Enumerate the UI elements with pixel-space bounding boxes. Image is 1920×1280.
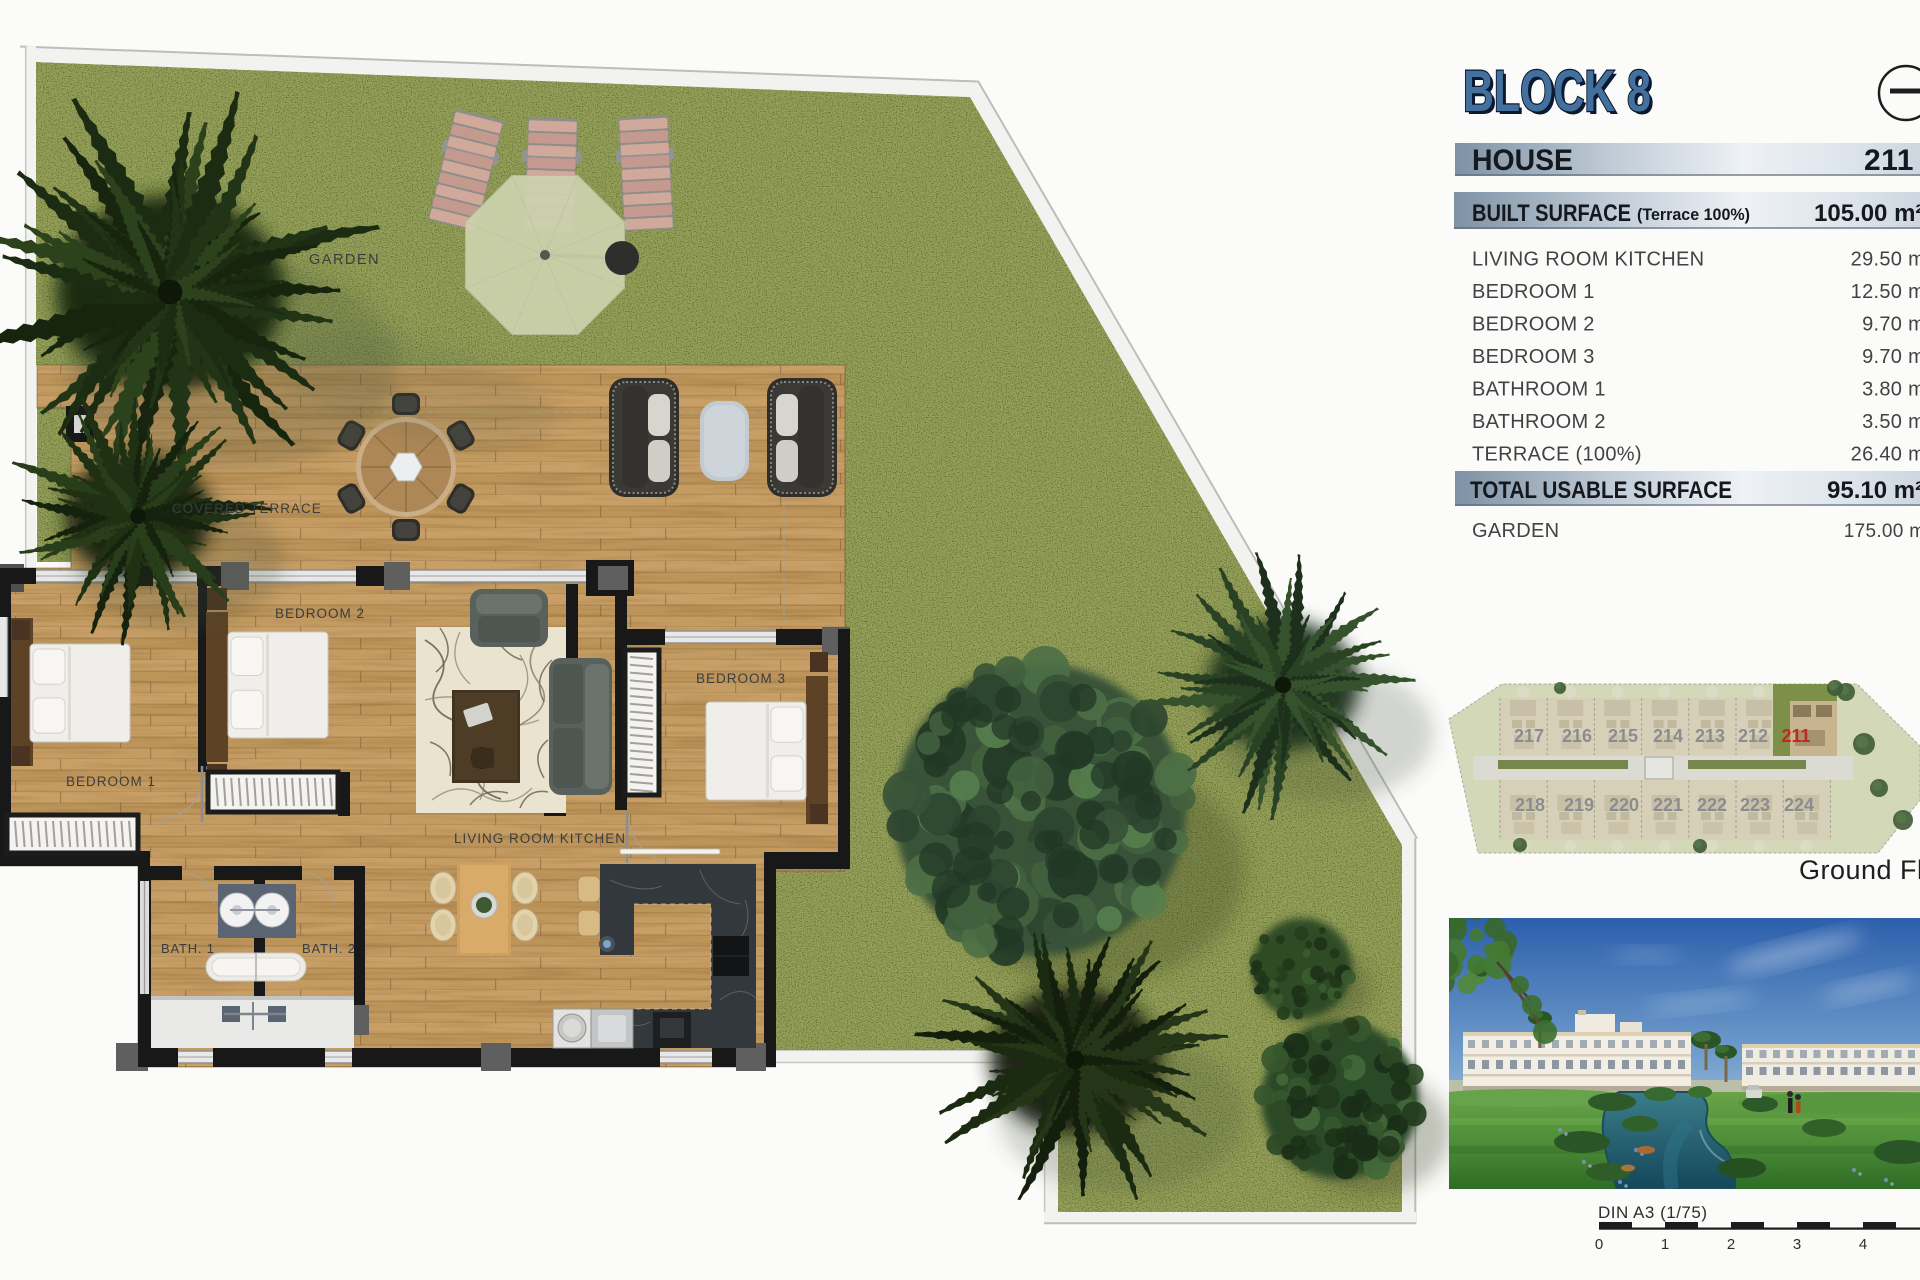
svg-text:1: 1 [1661,1236,1669,1253]
svg-text:218: 218 [1515,795,1545,815]
svg-text:224: 224 [1784,795,1814,815]
svg-text:29.50 m²: 29.50 m² [1851,249,1920,271]
svg-text:3.50 m²: 3.50 m² [1862,411,1920,433]
svg-text:BATH. 1: BATH. 1 [161,941,215,956]
svg-text:2: 2 [1727,1236,1735,1253]
svg-text:BEDROOM 2: BEDROOM 2 [275,606,365,621]
svg-text:213: 213 [1695,726,1725,746]
svg-text:BEDROOM 3: BEDROOM 3 [1472,346,1595,368]
svg-text:3.80 m²: 3.80 m² [1862,379,1920,401]
svg-text:217: 217 [1514,726,1544,746]
svg-text:0: 0 [1595,1236,1603,1253]
svg-text:BEDROOM 2: BEDROOM 2 [1472,314,1595,336]
svg-text:215: 215 [1608,726,1638,746]
svg-text:HOUSE: HOUSE [1472,144,1573,177]
svg-text:211: 211 [1864,144,1914,177]
svg-text:95.10 m²: 95.10 m² [1827,477,1920,504]
svg-text:3: 3 [1793,1236,1801,1253]
svg-text:Ground Floor: Ground Floor [1799,855,1920,885]
svg-text:214: 214 [1653,726,1683,746]
svg-text:LIVING ROOM KITCHEN: LIVING ROOM KITCHEN [1472,249,1704,271]
svg-text:26.40 m²: 26.40 m² [1851,444,1920,466]
svg-text:BEDROOM 1: BEDROOM 1 [1472,281,1595,303]
svg-text:221: 221 [1653,795,1683,815]
svg-text:175.00 m²: 175.00 m² [1844,521,1920,542]
svg-text:4: 4 [1859,1236,1867,1253]
svg-text:BATHROOM 2: BATHROOM 2 [1472,411,1606,433]
svg-text:222: 222 [1697,795,1727,815]
svg-text:212: 212 [1738,726,1768,746]
svg-text:105.00 m²: 105.00 m² [1814,200,1920,227]
svg-text:(Terrace 100%): (Terrace 100%) [1637,206,1750,224]
svg-text:216: 216 [1562,726,1592,746]
svg-text:DIN A3 (1/75): DIN A3 (1/75) [1598,1203,1708,1222]
svg-text:220: 220 [1609,795,1639,815]
svg-text:GARDEN: GARDEN [309,252,380,268]
svg-text:BEDROOM 1: BEDROOM 1 [66,774,156,789]
svg-text:COVERED TERRACE: COVERED TERRACE [172,501,322,516]
svg-text:BATHROOM 1: BATHROOM 1 [1472,379,1606,401]
svg-text:219: 219 [1564,795,1594,815]
svg-text:223: 223 [1740,795,1770,815]
svg-text:12.50 m²: 12.50 m² [1851,281,1920,303]
svg-text:211: 211 [1781,726,1810,746]
svg-text:9.70 m²: 9.70 m² [1862,314,1920,336]
svg-text:GARDEN: GARDEN [1472,520,1559,542]
svg-text:9.70 m²: 9.70 m² [1862,346,1920,368]
svg-text:TERRACE (100%): TERRACE (100%) [1472,444,1642,466]
svg-text:LIVING ROOM KITCHEN: LIVING ROOM KITCHEN [454,831,626,846]
svg-text:BUILT SURFACE: BUILT SURFACE [1472,200,1631,227]
svg-text:BATH. 2: BATH. 2 [302,941,356,956]
svg-text:BEDROOM 3: BEDROOM 3 [696,671,786,686]
svg-text:BLOCK 8: BLOCK 8 [1463,59,1651,124]
svg-text:TOTAL USABLE SURFACE: TOTAL USABLE SURFACE [1470,477,1732,504]
